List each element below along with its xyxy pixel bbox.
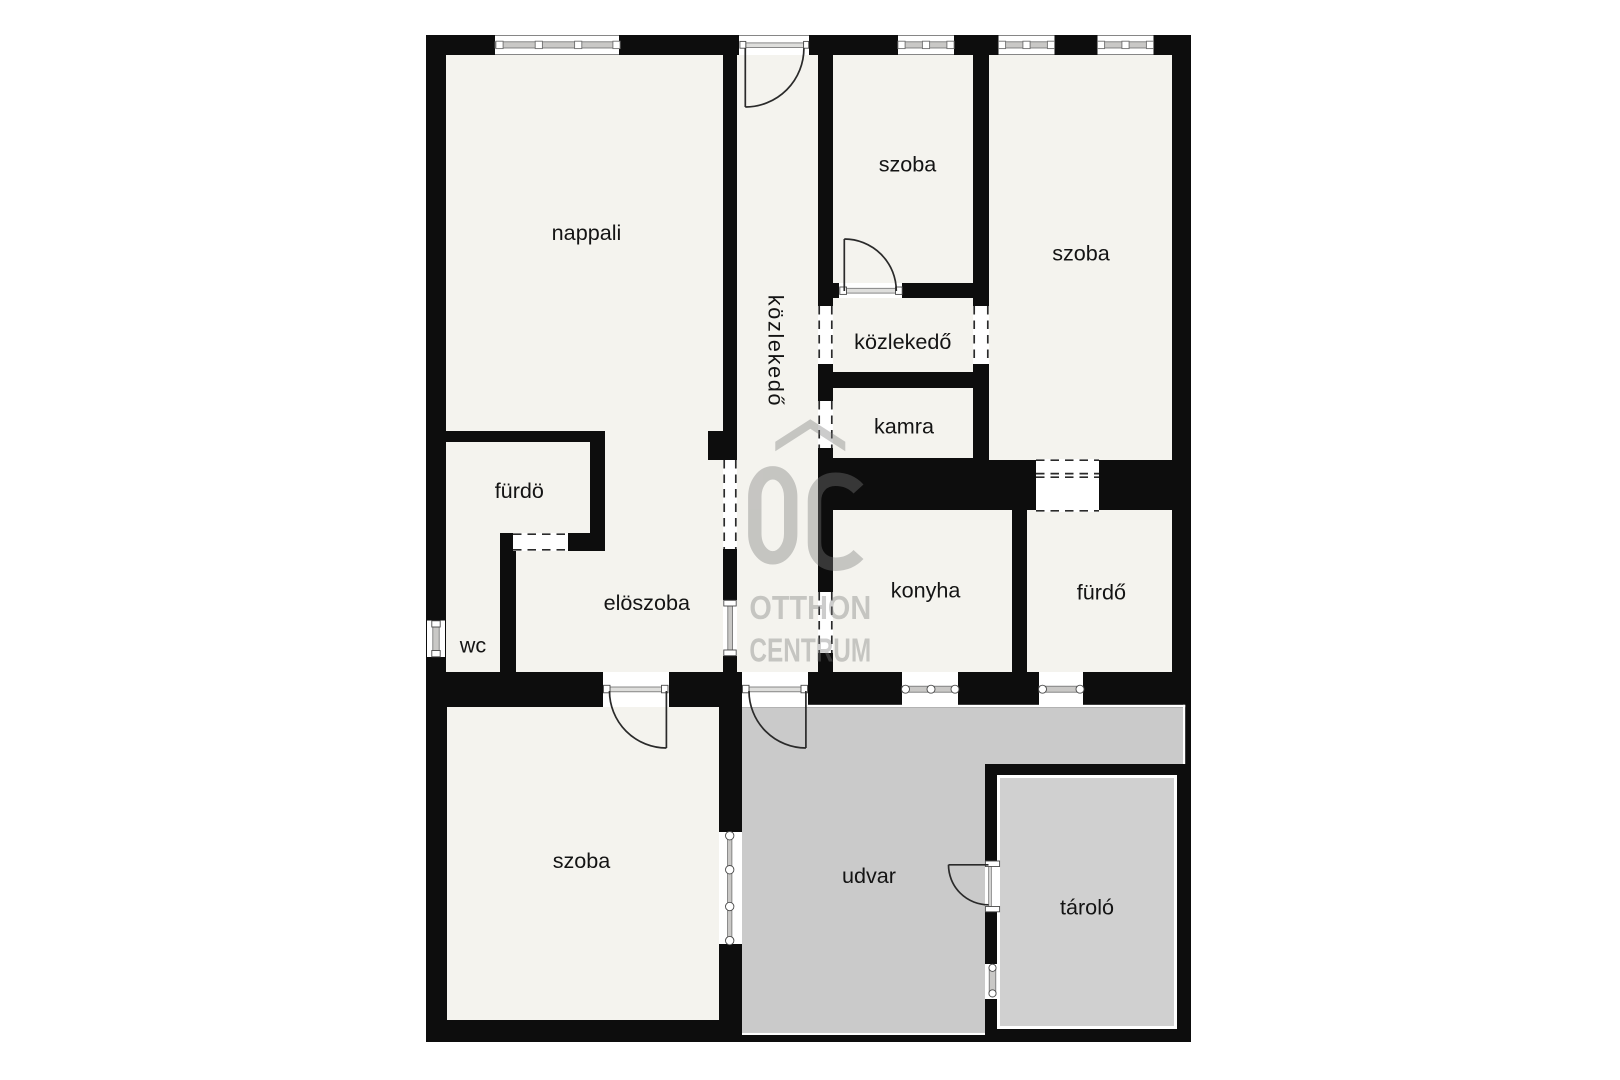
svg-text:közlekedő: közlekedő — [854, 329, 951, 354]
svg-text:wc: wc — [459, 633, 487, 658]
svg-text:OTTHON: OTTHON — [749, 589, 871, 626]
svg-text:közlekedő: közlekedő — [764, 295, 789, 408]
svg-text:konyha: konyha — [891, 578, 962, 603]
svg-text:kamra: kamra — [874, 414, 935, 439]
svg-text:fürdő: fürdő — [1077, 580, 1126, 605]
svg-text:CENTRUM: CENTRUM — [749, 633, 871, 669]
svg-text:szoba: szoba — [553, 848, 612, 873]
svg-text:fürdö: fürdö — [495, 478, 544, 503]
svg-text:szoba: szoba — [879, 152, 938, 177]
svg-text:szoba: szoba — [1052, 241, 1111, 266]
svg-text:tároló: tároló — [1060, 895, 1114, 920]
svg-text:elöszoba: elöszoba — [604, 590, 691, 615]
svg-text:nappali: nappali — [552, 220, 622, 245]
svg-text:udvar: udvar — [842, 863, 896, 888]
